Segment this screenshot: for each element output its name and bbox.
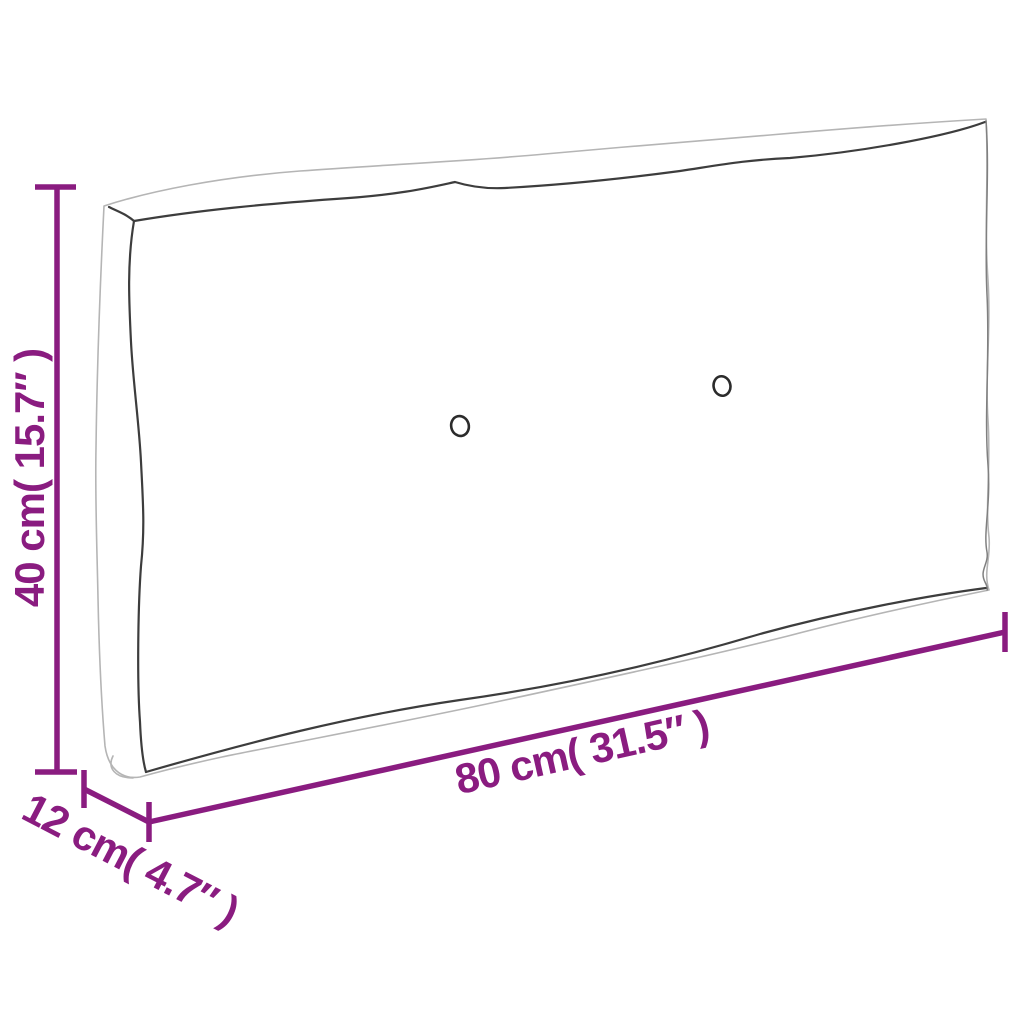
cushion-left-seam (129, 221, 146, 772)
length-dimension-label: 80 cm( 31.5″ ) (451, 701, 713, 804)
diagram-canvas: 40 cm( 15.7″ ) 80 cm( 31.5″ ) 12 cm( 4.7… (0, 0, 1024, 1024)
length-dimension: 80 cm( 31.5″ ) (149, 612, 1005, 842)
cushion-drawing (96, 119, 990, 778)
depth-dimension: 12 cm( 4.7″ ) (15, 770, 246, 934)
cushion-outer-outline (96, 119, 990, 777)
cushion-corner-seam (109, 207, 134, 221)
tufting-button-left (449, 414, 471, 438)
length-dimension-line (149, 632, 1005, 822)
cushion-top-seam (134, 122, 985, 221)
height-dimension: 40 cm( 15.7″ ) (6, 187, 77, 772)
dimension-diagram: 40 cm( 15.7″ ) 80 cm( 31.5″ ) 12 cm( 4.7… (0, 0, 1024, 1024)
tufting-button-right (712, 375, 733, 398)
height-dimension-label: 40 cm( 15.7″ ) (6, 349, 53, 607)
